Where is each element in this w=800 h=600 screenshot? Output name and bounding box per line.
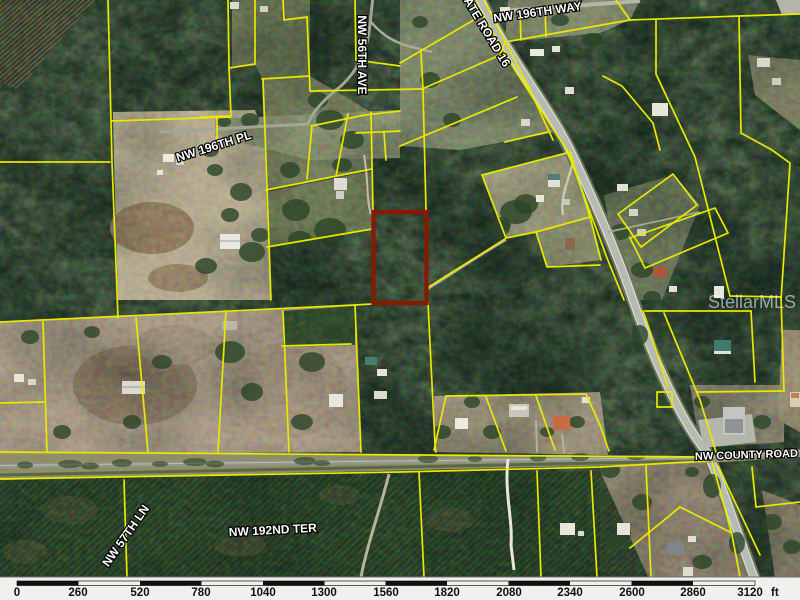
svg-text:520: 520 [130,587,149,599]
svg-text:1040: 1040 [250,587,276,599]
svg-text:2340: 2340 [557,587,583,599]
svg-text:NW 56TH AVE: NW 56TH AVE [355,15,369,94]
svg-text:StellarMLS: StellarMLS [708,292,796,312]
svg-text:3120: 3120 [737,587,763,599]
svg-text:780: 780 [191,587,210,599]
svg-text:260: 260 [68,587,87,599]
svg-text:0: 0 [14,587,20,599]
svg-text:1560: 1560 [373,587,399,599]
svg-text:1820: 1820 [434,587,460,599]
svg-text:ft: ft [771,587,779,599]
svg-text:1300: 1300 [311,587,337,599]
svg-text:2600: 2600 [619,587,645,599]
svg-text:2080: 2080 [496,587,522,599]
svg-text:2860: 2860 [680,587,706,599]
